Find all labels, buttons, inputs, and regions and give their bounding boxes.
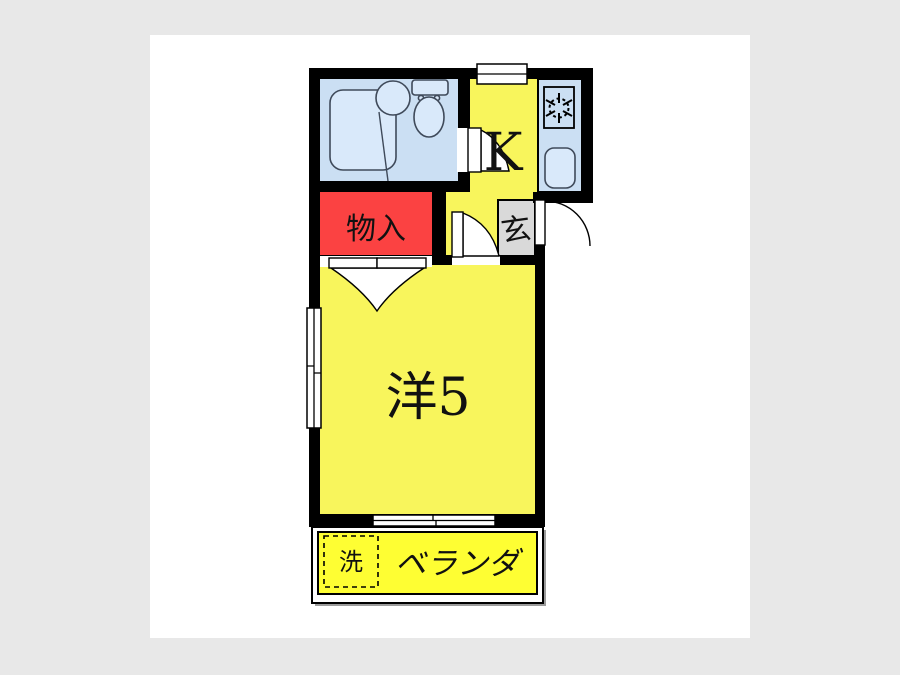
wall-bath-bottom (309, 181, 470, 192)
wall-right-outer (582, 68, 593, 203)
entrance-label: 玄 (499, 211, 534, 250)
balcony-label: ベランダ (395, 546, 524, 582)
room-side-window (307, 308, 321, 428)
balcony-window (373, 515, 495, 526)
kitchen-sink (545, 148, 575, 188)
toilet-bowl (414, 97, 444, 137)
toilet-tank (412, 80, 448, 95)
floor-plan: K 物入 玄 洋5 洗 ベランダ (0, 0, 900, 675)
wall-top (309, 68, 593, 79)
kitchen-window (477, 64, 527, 84)
wall-left (309, 68, 320, 527)
washer-label: 洗 (339, 548, 363, 576)
closet-label: 物入 (346, 212, 406, 247)
kitchen-label: K (484, 123, 524, 183)
western-room-label: 洋5 (385, 368, 470, 428)
wall-room-right (535, 245, 545, 527)
wash-basin (376, 81, 410, 115)
wall-closet-right (432, 192, 446, 265)
